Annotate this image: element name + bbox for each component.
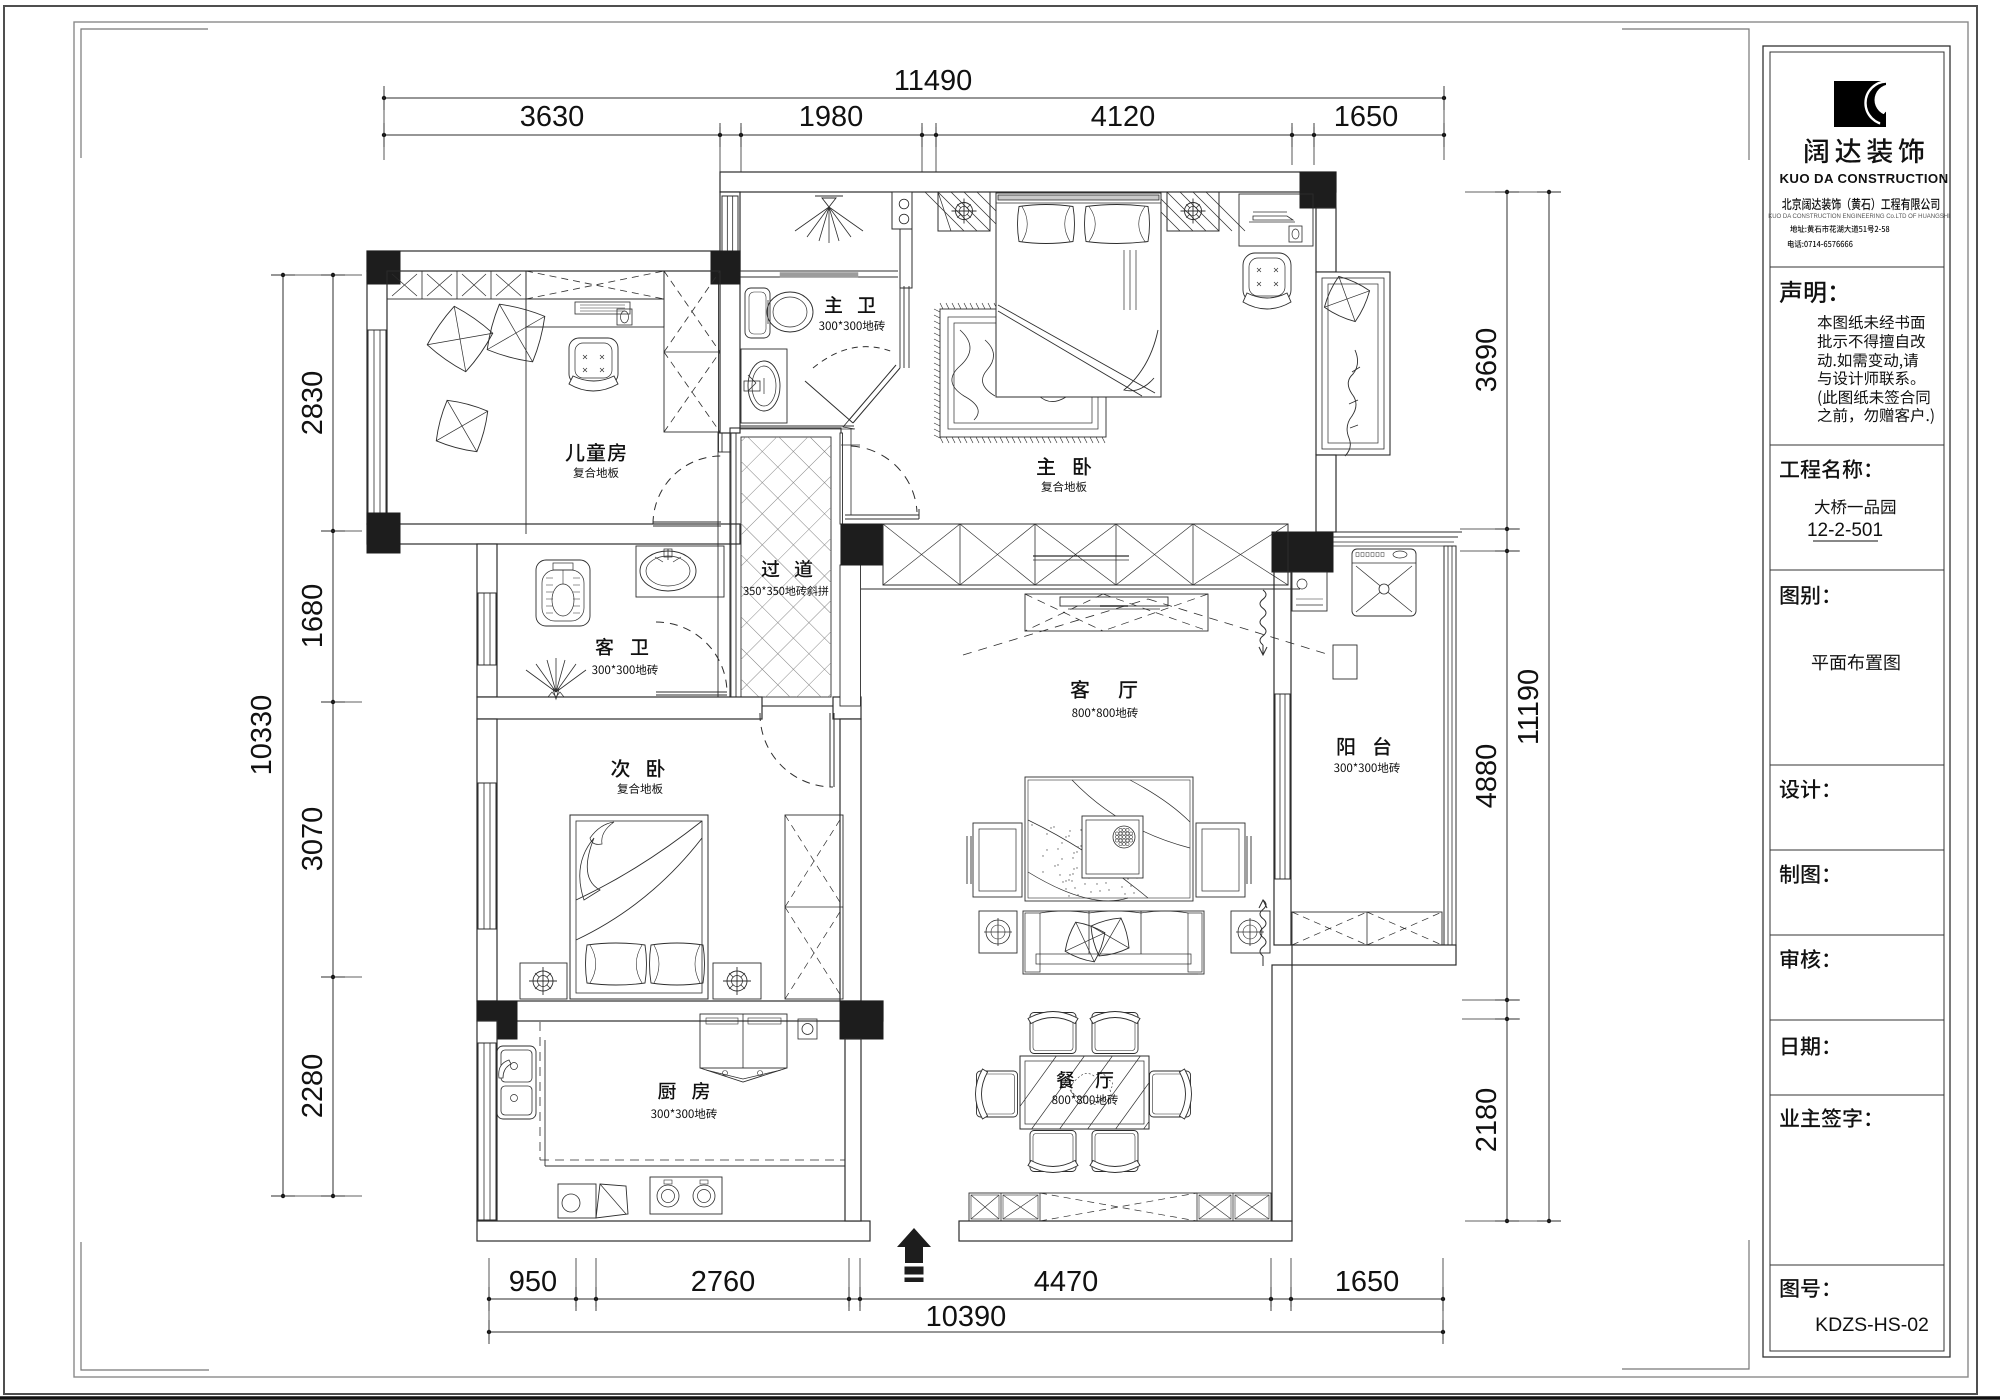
- svg-text:4880: 4880: [1471, 744, 1503, 809]
- svg-text:1980: 1980: [799, 101, 864, 133]
- svg-text:1650: 1650: [1334, 101, 1399, 133]
- svg-text:11190: 11190: [1513, 669, 1545, 745]
- svg-text:3690: 3690: [1471, 328, 1503, 393]
- svg-text:4120: 4120: [1091, 101, 1156, 133]
- svg-text:KUO DA CONSTRUCTION: KUO DA CONSTRUCTION: [1779, 171, 1948, 186]
- svg-text:3070: 3070: [297, 807, 329, 872]
- svg-text:12-2-501: 12-2-501: [1807, 520, 1883, 541]
- svg-text:KUO DA CONSTRUCTION ENGINEERIN: KUO DA CONSTRUCTION ENGINEERING Co.LTD O…: [1768, 214, 1950, 220]
- svg-text:2180: 2180: [1471, 1088, 1503, 1153]
- svg-text:1650: 1650: [1335, 1266, 1400, 1298]
- svg-text:11490: 11490: [894, 65, 973, 97]
- svg-text:10330: 10330: [246, 695, 278, 776]
- svg-text:2280: 2280: [297, 1054, 329, 1119]
- svg-text:KDZS-HS-02: KDZS-HS-02: [1815, 1314, 1929, 1336]
- svg-text:10390: 10390: [926, 1301, 1007, 1333]
- svg-text:950: 950: [509, 1266, 557, 1298]
- svg-text:1680: 1680: [297, 584, 329, 649]
- svg-text:3630: 3630: [520, 101, 585, 133]
- svg-text:4470: 4470: [1034, 1266, 1099, 1298]
- svg-text:2830: 2830: [297, 371, 329, 436]
- svg-text:2760: 2760: [691, 1266, 756, 1298]
